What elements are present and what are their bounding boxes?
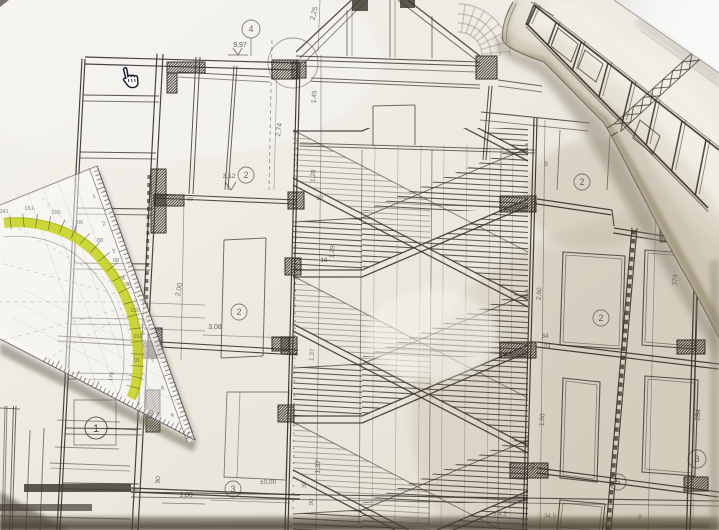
svg-text:90: 90 [309,498,316,506]
svg-text:34: 34 [542,334,549,340]
svg-text:2: 2 [236,307,241,317]
svg-text:1,28: 1,28 [309,169,317,183]
svg-text:2,60: 2,60 [535,287,543,301]
svg-text:06: 06 [77,220,83,226]
svg-text:011: 011 [134,334,143,340]
svg-text:2: 2 [579,177,584,187]
svg-text:100: 100 [130,308,139,314]
svg-text:1,45: 1,45 [310,90,318,104]
svg-text:3,08: 3,08 [208,324,222,331]
svg-text:100: 100 [51,210,60,216]
svg-text:OLL: OLL [25,206,35,212]
svg-text:06: 06 [125,282,131,288]
svg-text:9,97: 9,97 [233,42,247,49]
svg-text:30: 30 [302,481,309,489]
svg-text:2: 2 [243,170,248,180]
svg-text:4: 4 [248,24,253,34]
svg-text:1,37: 1,37 [308,348,316,362]
svg-text:08: 08 [113,258,119,264]
svg-text:3,12: 3,12 [223,173,236,180]
svg-text:08: 08 [97,238,103,244]
svg-text:23: 23 [187,197,193,203]
svg-text:3: 3 [694,454,699,464]
svg-text:041: 041 [0,209,9,215]
svg-text:284: 284 [695,409,703,421]
svg-text:90: 90 [155,476,163,484]
svg-text:5: 5 [615,477,620,487]
svg-text:01: 01 [134,358,140,364]
svg-text:±0,00: ±0,00 [260,479,277,486]
svg-text:90: 90 [530,463,538,471]
svg-text:1,37: 1,37 [314,460,322,474]
svg-text:1,29: 1,29 [328,245,336,259]
svg-text:2: 2 [598,313,603,323]
svg-text:1: 1 [93,423,99,435]
svg-text:1,50: 1,50 [538,413,546,427]
